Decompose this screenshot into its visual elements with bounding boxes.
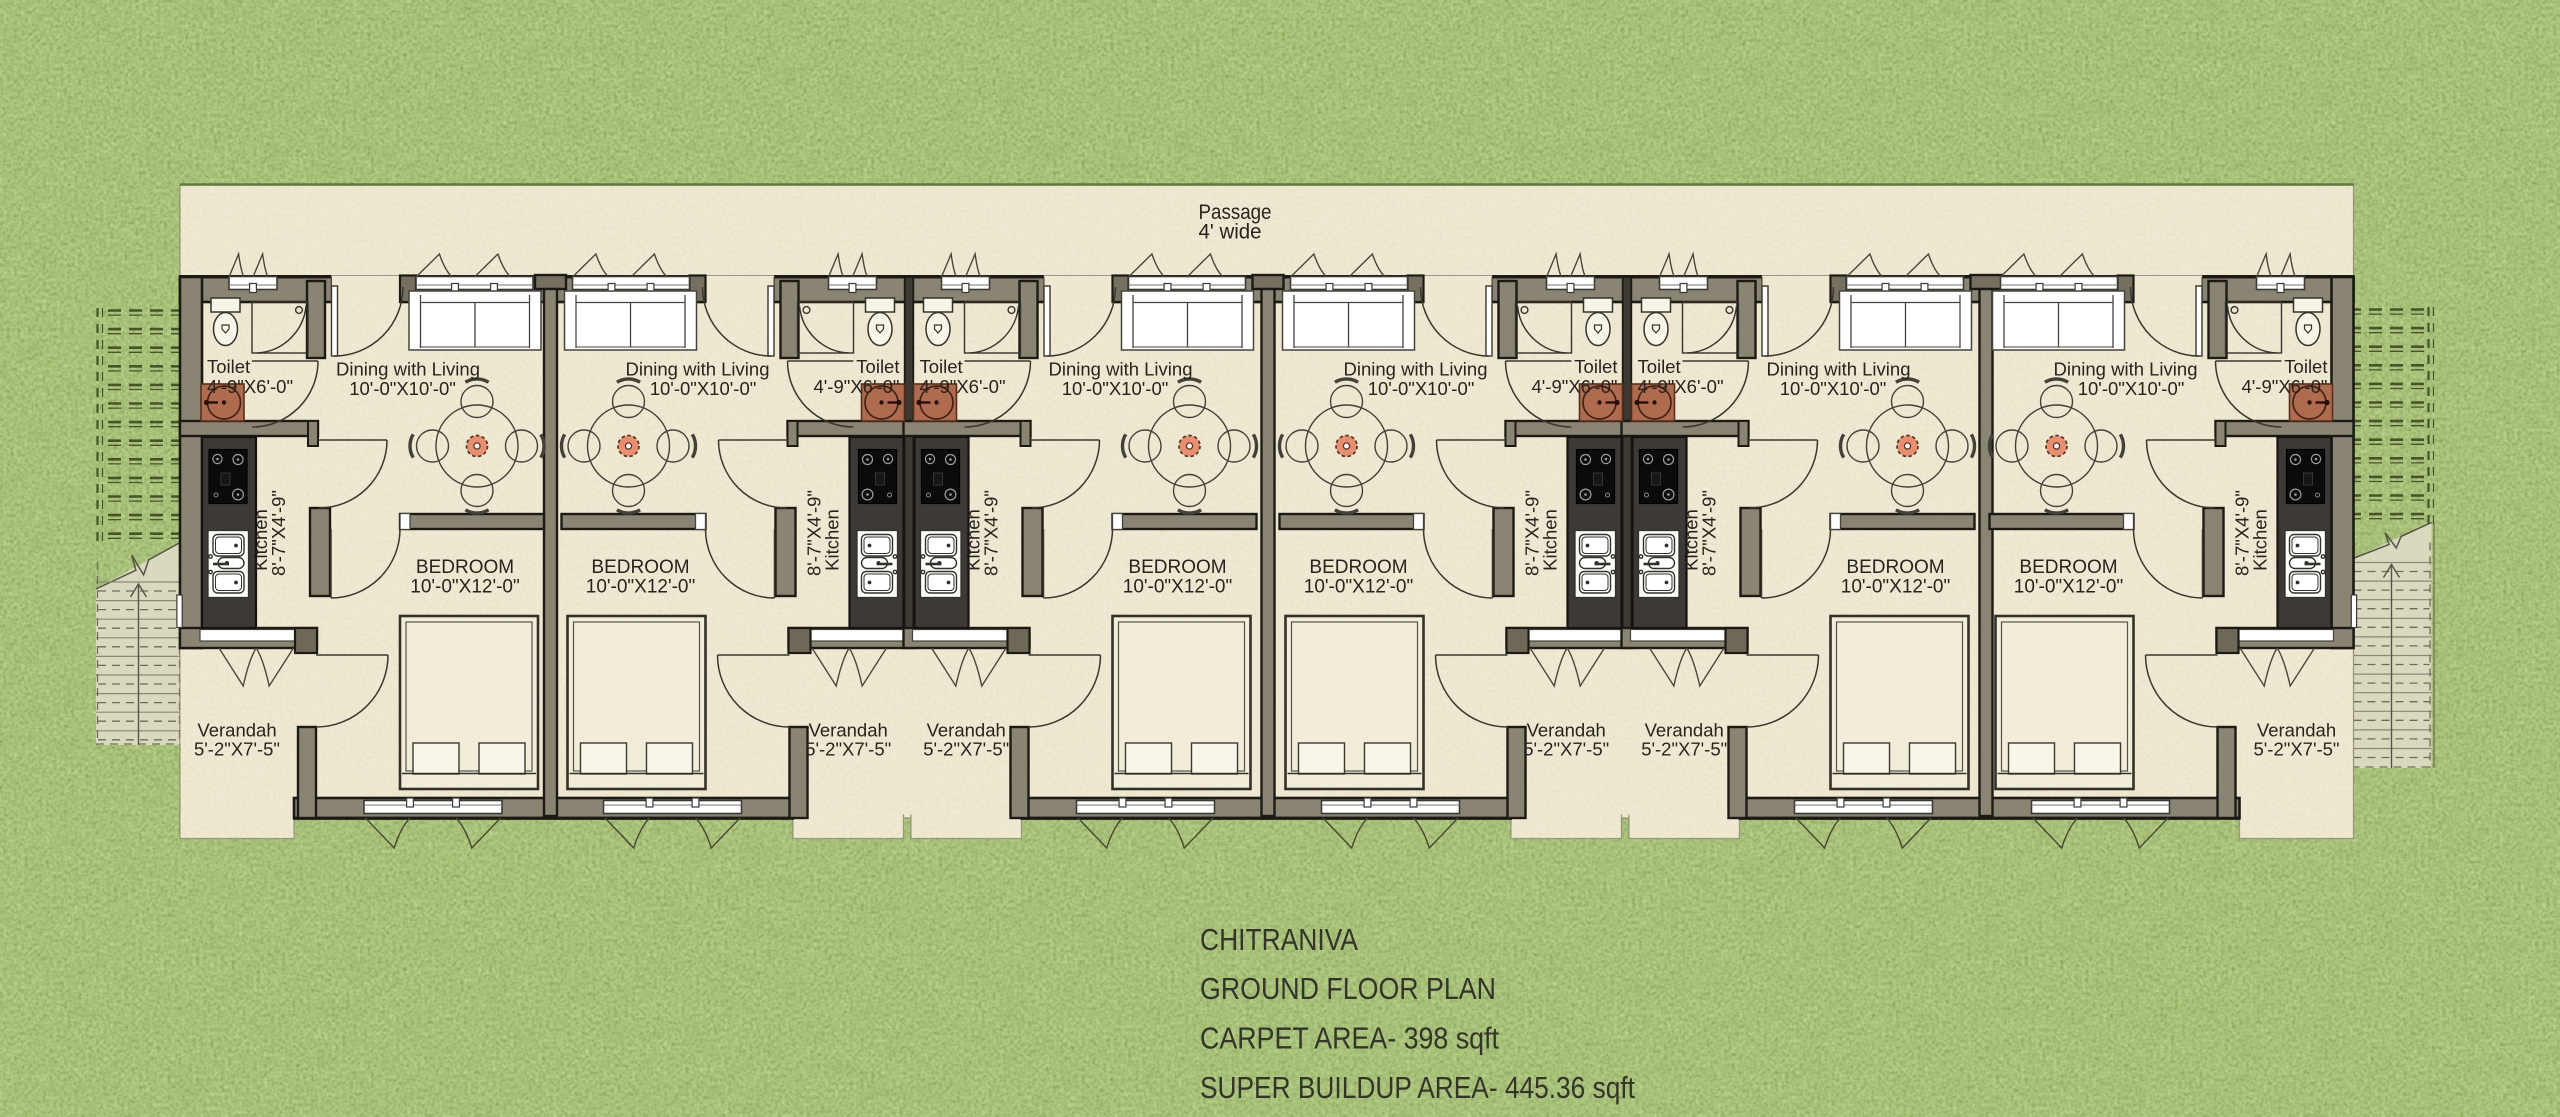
svg-text:BEDROOM: BEDROOM	[591, 557, 689, 578]
svg-text:BEDROOM: BEDROOM	[416, 557, 514, 578]
svg-text:BEDROOM: BEDROOM	[1309, 557, 1407, 578]
svg-text:Kitchen: Kitchen	[2250, 509, 2271, 571]
svg-text:4' wide: 4' wide	[1199, 221, 1262, 244]
svg-text:10'-0"X10'-0": 10'-0"X10'-0"	[349, 378, 456, 399]
svg-text:10'-0"X12'-0": 10'-0"X12'-0"	[1841, 577, 1950, 598]
svg-text:10'-0"X12'-0": 10'-0"X12'-0"	[586, 577, 695, 598]
svg-text:Dining with Living: Dining with Living	[336, 359, 480, 380]
svg-text:10'-0"X12'-0": 10'-0"X12'-0"	[410, 577, 519, 598]
svg-text:4'-9"X6'-0": 4'-9"X6'-0"	[207, 376, 293, 397]
svg-text:8'-7"X4'-9": 8'-7"X4'-9"	[804, 490, 825, 576]
svg-text:10'-0"X12'-0": 10'-0"X12'-0"	[1304, 577, 1413, 598]
svg-text:4'-9"X6'-0": 4'-9"X6'-0"	[1531, 376, 1617, 397]
svg-text:Kitchen: Kitchen	[1540, 509, 1561, 571]
svg-text:8'-7"X4'-9": 8'-7"X4'-9"	[1522, 490, 1543, 576]
svg-text:4'-9"X6'-0": 4'-9"X6'-0"	[1638, 376, 1724, 397]
svg-text:Verandah: Verandah	[809, 720, 888, 741]
svg-text:Dining with Living: Dining with Living	[2054, 359, 2198, 380]
svg-text:Toilet: Toilet	[920, 356, 963, 377]
svg-text:5'-2"X7'-5": 5'-2"X7'-5"	[805, 739, 891, 760]
svg-text:Toilet: Toilet	[207, 356, 250, 377]
svg-text:5'-2"X7'-5": 5'-2"X7'-5"	[2253, 739, 2339, 760]
svg-text:CARPET AREA- 398 sqft: CARPET AREA- 398 sqft	[1200, 1021, 1499, 1056]
svg-text:Verandah: Verandah	[2257, 720, 2336, 741]
svg-text:BEDROOM: BEDROOM	[1846, 557, 1944, 578]
svg-text:5'-2"X7'-5": 5'-2"X7'-5"	[1523, 739, 1609, 760]
svg-text:5'-2"X7'-5": 5'-2"X7'-5"	[194, 739, 280, 760]
svg-text:Verandah: Verandah	[1645, 720, 1724, 741]
svg-text:4'-9"X6'-0": 4'-9"X6'-0"	[920, 376, 1006, 397]
svg-text:10'-0"X10'-0": 10'-0"X10'-0"	[1780, 378, 1887, 399]
svg-text:10'-0"X10'-0": 10'-0"X10'-0"	[1062, 378, 1169, 399]
svg-text:8'-7"X4'-9": 8'-7"X4'-9"	[2232, 490, 2253, 576]
svg-text:10'-0"X10'-0": 10'-0"X10'-0"	[1368, 378, 1475, 399]
svg-text:BEDROOM: BEDROOM	[2019, 557, 2117, 578]
svg-text:BEDROOM: BEDROOM	[1128, 557, 1226, 578]
svg-text:Dining with Living: Dining with Living	[1049, 359, 1193, 380]
svg-text:Verandah: Verandah	[1527, 720, 1606, 741]
svg-text:Toilet: Toilet	[1638, 356, 1681, 377]
svg-text:8'-7"X4'-9": 8'-7"X4'-9"	[268, 490, 289, 576]
svg-text:Dining with Living: Dining with Living	[1344, 359, 1488, 380]
svg-text:Kitchen: Kitchen	[822, 509, 843, 571]
svg-text:CHITRANIVA: CHITRANIVA	[1200, 922, 1358, 957]
svg-text:10'-0"X10'-0": 10'-0"X10'-0"	[650, 378, 757, 399]
svg-text:Toilet: Toilet	[856, 356, 899, 377]
svg-text:Dining with Living: Dining with Living	[626, 359, 770, 380]
svg-text:Verandah: Verandah	[197, 720, 276, 741]
svg-text:Toilet: Toilet	[1574, 356, 1617, 377]
svg-text:5'-2"X7'-5": 5'-2"X7'-5"	[923, 739, 1009, 760]
svg-text:10'-0"X10'-0": 10'-0"X10'-0"	[2078, 378, 2185, 399]
svg-text:Toilet: Toilet	[2284, 356, 2327, 377]
svg-text:8'-7"X4'-9": 8'-7"X4'-9"	[981, 490, 1002, 576]
svg-text:4'-9"X6'-0": 4'-9"X6'-0"	[813, 376, 899, 397]
svg-text:GROUND FLOOR PLAN: GROUND FLOOR PLAN	[1200, 971, 1496, 1006]
svg-text:5'-2"X7'-5": 5'-2"X7'-5"	[1641, 739, 1727, 760]
svg-text:10'-0"X12'-0": 10'-0"X12'-0"	[1123, 577, 1232, 598]
svg-text:10'-0"X12'-0": 10'-0"X12'-0"	[2014, 577, 2123, 598]
svg-text:SUPER BUILDUP AREA- 445.36 sqf: SUPER BUILDUP AREA- 445.36 sqft	[1200, 1070, 1635, 1105]
svg-text:Dining with Living: Dining with Living	[1767, 359, 1911, 380]
svg-text:8'-7"X4'-9": 8'-7"X4'-9"	[1699, 490, 1720, 576]
svg-text:4'-9"X6'-0": 4'-9"X6'-0"	[2241, 376, 2327, 397]
svg-text:Verandah: Verandah	[927, 720, 1006, 741]
